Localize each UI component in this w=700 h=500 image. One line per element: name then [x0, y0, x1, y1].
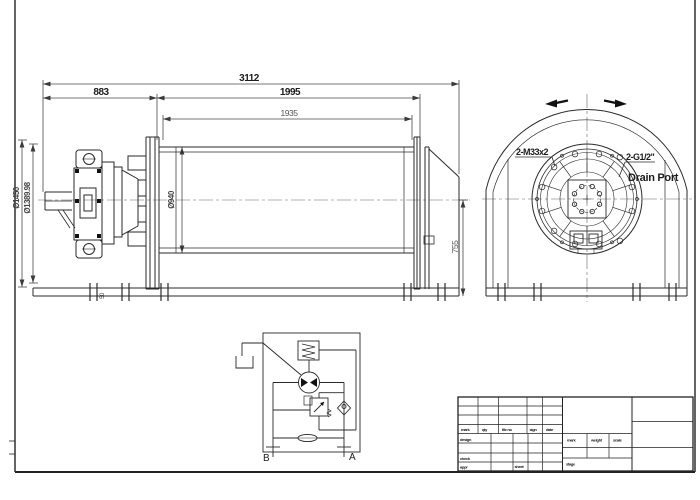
end-housing: [486, 110, 687, 301]
row-check: check: [460, 456, 471, 461]
rev-header-mark: mark: [461, 427, 470, 432]
hydraulic-motor: [299, 372, 320, 393]
bolt-spec-label: 2-M33x2: [516, 147, 549, 157]
anchor-bolts: [90, 283, 445, 301]
signature-grid: [458, 434, 563, 472]
base-plate: [33, 283, 459, 301]
external-pilot-line: [236, 343, 301, 375]
dim-pitch-dia: Ø1389.98: [23, 181, 32, 213]
seal-sections: [75, 169, 101, 238]
hydraulic-schematic: B A: [236, 333, 360, 464]
rev-header-sign: sign: [530, 427, 538, 432]
dim-drum-inner: 1935: [281, 108, 299, 118]
dim-overall-length: 3112: [239, 73, 260, 84]
title-block: mark qty file no sign date design check …: [458, 397, 693, 471]
winch-drawing: 3112 883 1995 1935 Ø940 755 Ø1450 Ø1389.…: [0, 0, 700, 500]
sheet-border: [9, 0, 695, 472]
side-view: 3112 883 1995 1935 Ø940 755 Ø1450 Ø1389.…: [12, 73, 470, 301]
dim-barrel-dia: Ø940: [167, 190, 176, 209]
end-view: 2-M33x2 2-G1/2" Drain Port: [482, 94, 692, 302]
counterbalance-valve: [304, 396, 331, 417]
rev-header-date: date: [546, 427, 554, 432]
port-a-label: A: [349, 452, 356, 463]
drum: [146, 137, 459, 289]
motor-assembly: [45, 150, 146, 258]
dim-motor-section: 883: [93, 87, 109, 98]
row-appr: appr: [460, 465, 468, 470]
row-design: design: [460, 437, 472, 442]
rotation-arrows: [545, 100, 627, 108]
rev-header-file: file no: [502, 427, 513, 432]
stage-label: stage: [566, 462, 576, 467]
brake-spring: [298, 341, 319, 372]
drain-spec-label: 2-G1/2": [626, 152, 655, 162]
sheet-label: sheet: [515, 464, 525, 469]
lower-block: [570, 231, 602, 254]
mid-header-scale: scale: [613, 438, 623, 443]
drawing-sheet: 3112 883 1995 1935 Ø940 755 Ø1450 Ø1389.…: [0, 0, 700, 500]
orifice: [298, 434, 317, 441]
dim-drum-section: 1995: [280, 87, 301, 98]
right-grid: [632, 422, 693, 448]
dim-flange-dia: Ø1450: [12, 186, 21, 209]
rev-header-qty: qty: [482, 427, 488, 432]
port-b-label: B: [263, 453, 270, 464]
drain-port-label: Drain Port: [628, 172, 679, 184]
mid-header-mark: mark: [567, 438, 576, 443]
mid-header-weight: weight: [590, 438, 603, 443]
dim-base-offset: 50: [100, 292, 106, 299]
